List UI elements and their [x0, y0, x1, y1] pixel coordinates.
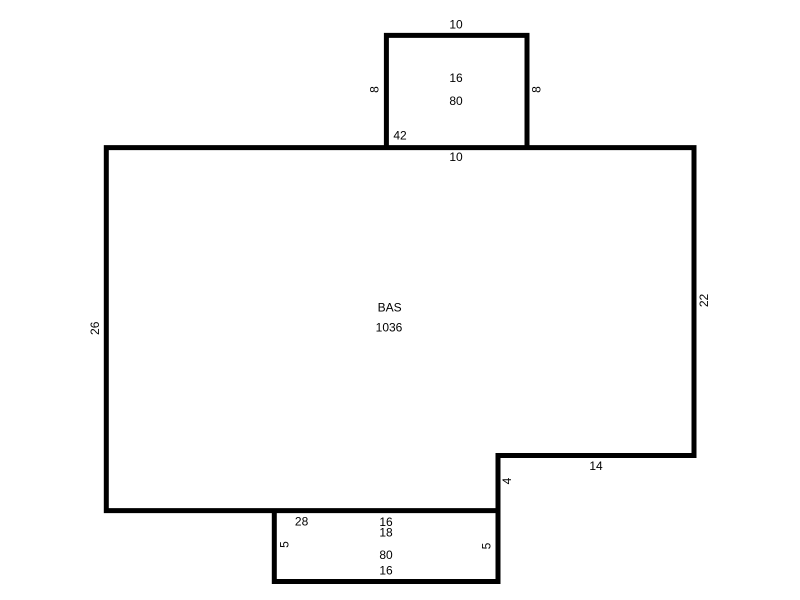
svg-text:14: 14 — [589, 459, 603, 473]
svg-text:42: 42 — [393, 128, 407, 142]
svg-text:28: 28 — [295, 515, 309, 529]
svg-text:18: 18 — [379, 525, 393, 539]
svg-text:22: 22 — [697, 294, 711, 308]
svg-text:10: 10 — [449, 150, 463, 164]
svg-text:BAS: BAS — [378, 301, 402, 315]
svg-text:5: 5 — [278, 541, 292, 548]
svg-text:10: 10 — [449, 17, 463, 31]
svg-text:80: 80 — [379, 548, 393, 562]
svg-text:5: 5 — [480, 542, 494, 549]
svg-text:80: 80 — [449, 94, 463, 108]
svg-text:8: 8 — [529, 86, 543, 93]
svg-text:4: 4 — [500, 477, 514, 484]
svg-text:16: 16 — [449, 71, 463, 85]
svg-text:26: 26 — [88, 321, 102, 335]
svg-text:1036: 1036 — [376, 320, 403, 334]
svg-text:8: 8 — [368, 86, 382, 93]
svg-text:16: 16 — [379, 563, 393, 577]
